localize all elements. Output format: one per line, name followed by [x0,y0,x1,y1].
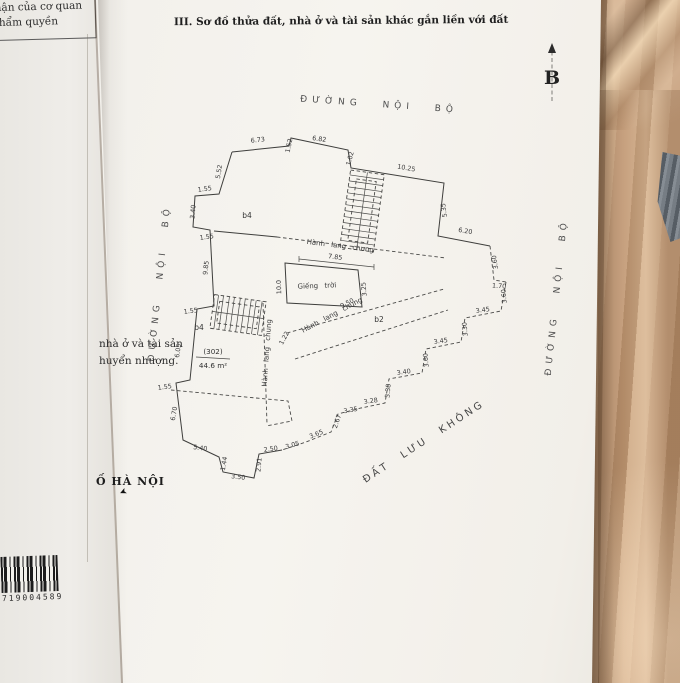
dimension-label: 3.30 [460,322,469,337]
dimension-label: 5.40 [193,443,208,453]
dimension-label: 3.25 [359,282,368,297]
parcel-outline-top [232,138,490,246]
dimension-label: 6.20 [458,226,473,236]
north-label: B [544,67,560,89]
dimension-label: 10.0 [275,280,283,295]
dimension-label: 3.45 [475,305,490,315]
dimension-label: 3.50 [231,472,246,482]
dimension-label: 3.40 [188,204,197,219]
dimension-label: 3.65 [308,428,324,441]
boundary-stairsteps-dashed [282,282,506,450]
stairs-icon-left [210,295,266,336]
apartment-inner-dashed [171,390,292,426]
dimension-label: 2.91 [254,457,263,472]
unit-number: (302) [203,347,223,356]
dimension-label: 3.40 [396,367,411,377]
dimension-label: 1.52 [284,138,295,154]
dimension-label: 9.85 [201,260,210,275]
parcel-outline-left-bottom [176,152,282,478]
dimension-label: 3.60 [421,353,430,368]
dimension-label: 5.35 [439,203,449,218]
dimension-label: 3.28 [363,396,378,406]
dimension-labels: 6.731.526.821.0210.255.356.203.601.705.5… [157,134,508,482]
corridor-label: Hành lang chung [306,238,374,254]
dimension-label: 1.55 [157,382,172,392]
dimension-label: 6.73 [250,135,265,144]
dimension-label: 3.38 [383,383,392,398]
dimension-label: 1.02 [344,151,355,167]
dimension-label: 6.70 [169,406,179,421]
dimension-label: 2.50 [263,444,278,454]
dimension-label: 3.05 [285,439,301,451]
dimension-label: 3.60 [499,289,508,304]
block-label: b2 [374,315,384,324]
unit-fraction-line [196,357,230,359]
dimension-label: 10.25 [397,163,416,174]
block-label: b4 [242,211,252,220]
dimension-label: 2.67 [331,413,343,429]
corridor-label: Hành lang chung [300,296,363,335]
unit-area: 44.6 m² [199,361,227,370]
dimension-label: 3.60 [490,255,500,270]
dimension-label: 3.45 [433,336,448,346]
dimension-label: 6.05 [173,343,183,358]
lightwell-label: Giếng trời [297,281,336,290]
stairs-icon-top [340,170,385,252]
north-arrow-icon: B [544,43,560,101]
b4-bottom-edge [214,231,277,237]
block-label: b4 [194,323,204,332]
dimension-label: 1.44 [219,456,229,471]
dimension-label: 1.55 [197,184,212,194]
dimension-label: 7.85 [328,252,343,262]
parcel-diagram: B (302) 44.6 m² Giếng trời 6.731.526.821… [0,0,680,683]
photo-of-land-certificate: { "colors": { "paper": "#f4f2ee", "fabri… [0,0,680,683]
dimension-label: 1.55 [199,232,214,242]
dimension-label: 3.35 [343,405,358,415]
dimension-label: 5.52 [214,164,224,179]
